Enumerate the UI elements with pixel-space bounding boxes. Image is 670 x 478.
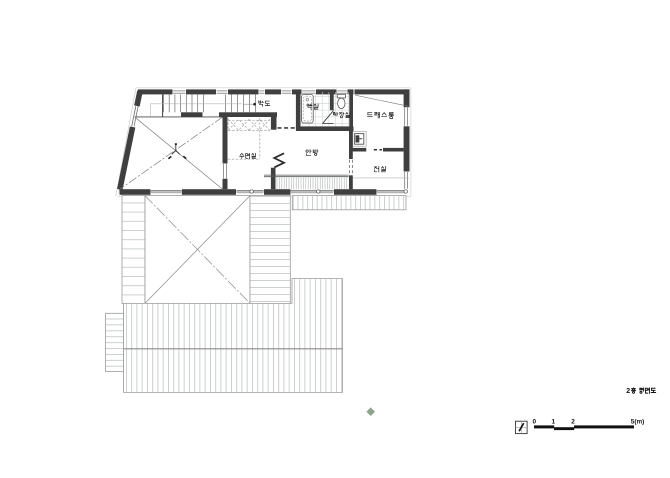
svg-text:5(m): 5(m) — [631, 418, 645, 425]
svg-text:0: 0 — [533, 418, 537, 425]
svg-text:1: 1 — [552, 418, 556, 425]
svg-text:2: 2 — [626, 388, 630, 395]
svg-text:2: 2 — [571, 418, 575, 425]
